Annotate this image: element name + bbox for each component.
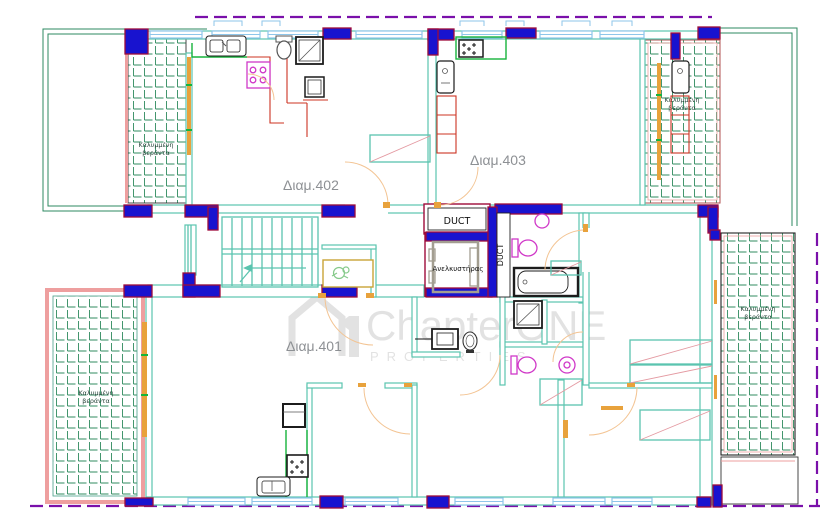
basin-icon [535, 214, 549, 228]
toilet-tank [512, 239, 518, 257]
door-arc [364, 388, 410, 434]
column [208, 207, 218, 230]
column [495, 204, 562, 214]
veranda-label: Καλυμμένη [138, 141, 173, 149]
wall-mid-h [412, 352, 460, 357]
column [124, 285, 152, 297]
column [124, 205, 152, 217]
sink-icon [437, 61, 454, 93]
column [322, 205, 355, 217]
column [671, 33, 680, 59]
column [323, 28, 351, 39]
kitchen-402 [192, 36, 328, 137]
wall-corridor-top [148, 205, 698, 213]
balcony-marks [214, 21, 632, 26]
watermark-one-icon [349, 316, 359, 357]
elevator-core: DUCT Ανελκυστήρας DUCT [323, 204, 510, 297]
veranda-bottom-left: Καλυμμένη βεράντα [47, 290, 143, 502]
column [320, 496, 343, 508]
walls [146, 31, 712, 505]
door-jamb [434, 202, 441, 208]
column [697, 497, 711, 507]
veranda-label: βεράντα [142, 149, 169, 157]
burner [250, 77, 256, 83]
toilet-tank [511, 356, 517, 374]
cabinet-cells [437, 96, 456, 153]
wardrobe-diagonal [370, 136, 430, 162]
door-gap [582, 228, 590, 272]
door-frame [142, 322, 147, 437]
door-frame [187, 57, 191, 155]
sink-bowl [227, 40, 240, 52]
burner [260, 67, 266, 73]
columns [124, 27, 722, 508]
door-arc [589, 387, 637, 435]
bathtub-inner [518, 271, 568, 293]
column [713, 485, 722, 507]
desk-inner [437, 333, 453, 345]
column [427, 496, 449, 508]
stair-arrow [243, 264, 252, 272]
wall-corridor-bottom-b [373, 285, 424, 297]
veranda-label: Καλυμμένη [664, 96, 699, 104]
veranda-label: Καλυμμένη [78, 389, 113, 397]
column [506, 28, 536, 38]
cabinet-dividers [437, 115, 456, 134]
veranda-hatch [128, 39, 186, 203]
column [183, 285, 220, 297]
veranda-label: βεράντα [668, 104, 695, 112]
door-arc [345, 162, 388, 205]
door-jamb [404, 383, 412, 387]
door-arc [440, 167, 478, 205]
veranda-lower-terrace [721, 457, 798, 504]
elevator-label: Ανελκυστήρας [432, 265, 483, 273]
door-jamb [583, 224, 588, 232]
veranda-label: βεράντα [82, 397, 109, 405]
door-sill [563, 420, 568, 438]
column [125, 29, 148, 54]
column [698, 27, 720, 39]
duct-label: DUCT [444, 216, 471, 227]
door-jamb [383, 202, 390, 208]
toilet-icon [519, 240, 537, 256]
site-boundary-green-topright [718, 28, 797, 226]
basin-drain [564, 362, 570, 368]
column [708, 207, 718, 233]
stair-treads [232, 218, 312, 286]
column [125, 498, 153, 506]
door-sill [601, 406, 623, 410]
veranda-edge [125, 39, 128, 203]
door-jamb [627, 383, 635, 387]
door-jamb [366, 293, 374, 298]
kitchen-401 [257, 404, 308, 497]
wall-rooms-h [589, 383, 712, 388]
stove-icon [247, 62, 270, 88]
toilet-icon [518, 357, 536, 373]
door-frame [714, 375, 717, 399]
toilet-icon [277, 41, 291, 59]
washing-machine-inner [308, 80, 321, 94]
chair-base [466, 350, 474, 353]
wall-rooms-v [558, 380, 564, 497]
door-frame [657, 63, 661, 180]
sink-bowl [210, 40, 223, 52]
door-frame [714, 280, 717, 304]
sink-icon [672, 61, 689, 93]
veranda-label: Καλυμμένη [740, 305, 775, 313]
stair-landing-rails [222, 249, 318, 254]
veranda-top-left: Καλυμμένη βεράντα [125, 39, 186, 203]
wall-right [700, 205, 712, 497]
door-jamb [358, 383, 366, 387]
wall-mid-v [412, 297, 417, 355]
stair-enclosure [222, 217, 318, 287]
landing-planter-box [323, 260, 373, 287]
door-jamb [318, 293, 326, 298]
sink-bowl [262, 481, 285, 493]
burner [250, 67, 256, 73]
wall-403-veranda [640, 39, 645, 205]
column [710, 230, 720, 240]
floor-plan: ChapterONE PROPERTIES Καλυμμένη βεράντα … [0, 0, 832, 520]
column [428, 29, 438, 55]
apartment-402-label: Διαμ.402 [283, 177, 339, 193]
wall-401-v2 [412, 385, 417, 497]
fridge-icon [283, 404, 305, 427]
stairwell [222, 217, 318, 287]
apartment-403-label: Διαμ.403 [470, 152, 526, 168]
wall-401-v1 [307, 385, 312, 497]
wall-402-403 [428, 39, 436, 205]
wall-landing-h [322, 245, 376, 249]
veranda-bottom-right: Καλυμμένη βεράντα [721, 233, 798, 504]
wall-401-h1a [307, 383, 342, 388]
elevator-wall-top [426, 232, 488, 241]
veranda-hatch [721, 233, 795, 455]
duct-side-label: DUCT [496, 244, 505, 267]
veranda-label: βεράντα [744, 313, 771, 321]
apartment-401-label: Διαμ.401 [286, 338, 342, 354]
